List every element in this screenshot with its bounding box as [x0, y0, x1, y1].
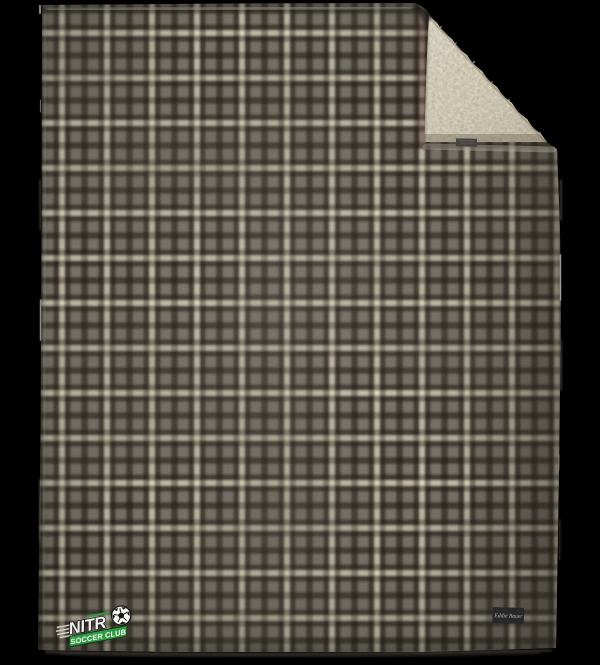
svg-text:Eddie Bauer: Eddie Bauer: [493, 613, 523, 620]
